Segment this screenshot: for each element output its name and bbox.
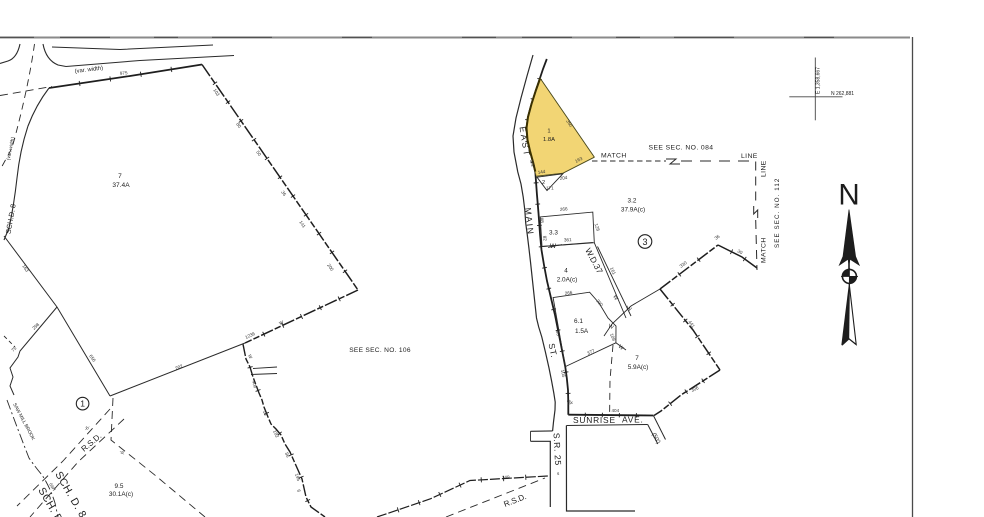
svg-text:SEE SEC. NO. 084: SEE SEC. NO. 084 bbox=[649, 145, 714, 152]
svg-text:N: N bbox=[838, 179, 859, 212]
svg-text:361: 361 bbox=[564, 237, 572, 242]
svg-text:MATCH: MATCH bbox=[601, 153, 627, 160]
svg-text:SEE SEC. NO. 112: SEE SEC. NO. 112 bbox=[774, 178, 781, 248]
svg-text:3.2: 3.2 bbox=[628, 198, 637, 205]
svg-text:9.5: 9.5 bbox=[115, 483, 124, 490]
svg-text:1.8A: 1.8A bbox=[543, 137, 555, 143]
svg-text:LINE: LINE bbox=[741, 153, 758, 160]
svg-text:4: 4 bbox=[564, 268, 568, 275]
svg-text:404: 404 bbox=[612, 408, 620, 413]
svg-text:7: 7 bbox=[635, 355, 639, 362]
svg-text:30.1A(c): 30.1A(c) bbox=[109, 491, 133, 498]
svg-text:349: 349 bbox=[502, 475, 510, 480]
svg-text:SUNRISE: SUNRISE bbox=[573, 415, 616, 425]
svg-text:MATCH: MATCH bbox=[761, 237, 768, 263]
svg-text:6.1: 6.1 bbox=[574, 318, 583, 325]
svg-text:171: 171 bbox=[546, 186, 554, 191]
svg-text:SEE SEC. NO. 106: SEE SEC. NO. 106 bbox=[349, 347, 411, 354]
svg-text:LINE: LINE bbox=[761, 160, 768, 177]
svg-text:3: 3 bbox=[642, 237, 647, 247]
svg-text:5.9A(c): 5.9A(c) bbox=[628, 364, 649, 371]
svg-text:3.3: 3.3 bbox=[549, 230, 558, 237]
svg-text:1: 1 bbox=[80, 399, 85, 409]
svg-text:E 1,358,667: E 1,358,667 bbox=[816, 67, 822, 94]
svg-text:S.R. 25: S.R. 25 bbox=[552, 433, 564, 466]
svg-text:975: 975 bbox=[120, 70, 129, 76]
svg-text:37.4A: 37.4A bbox=[112, 182, 130, 189]
svg-text:AVE.: AVE. bbox=[622, 415, 644, 425]
svg-text:37.9A(c): 37.9A(c) bbox=[621, 207, 645, 214]
svg-text:266: 266 bbox=[560, 206, 569, 212]
svg-text:2.0A(c): 2.0A(c) bbox=[557, 277, 578, 284]
svg-text:1.5A: 1.5A bbox=[575, 328, 589, 335]
svg-text:2: 2 bbox=[542, 180, 545, 186]
svg-text:1: 1 bbox=[547, 129, 550, 135]
svg-text:7: 7 bbox=[118, 173, 122, 180]
svg-text:N 262,881: N 262,881 bbox=[831, 91, 854, 97]
